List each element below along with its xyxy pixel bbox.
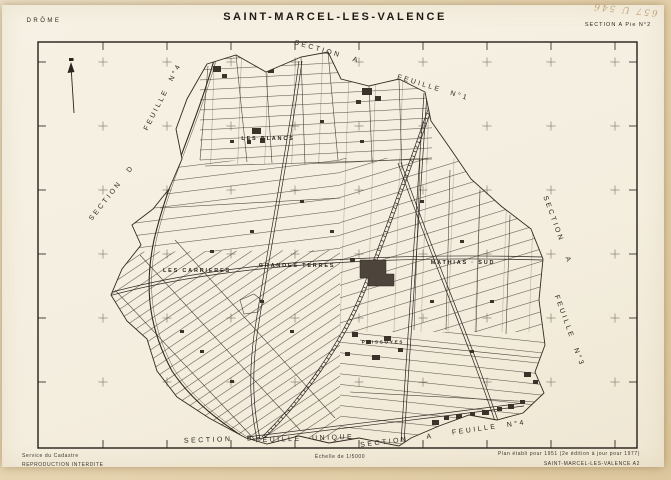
issuer-line1: Service du Cadastre xyxy=(22,453,79,459)
issuer-line2: REPRODUCTION INTERDITE xyxy=(22,462,104,468)
sheet-id: SAINT-MARCEL-LES-VALENCE A2 xyxy=(544,461,640,467)
label-poissoyes: POISSOYES xyxy=(362,340,404,345)
cadastral-map-drawing xyxy=(0,0,671,480)
page-title: SAINT-MARCEL-LES-VALENCE xyxy=(223,11,447,23)
department-label: DRÔME xyxy=(27,18,62,24)
scale-label: Échelle de 1/5000 xyxy=(315,454,365,460)
label-les-blancs: LES BLANCS xyxy=(241,136,294,142)
cadastral-map-scan: DRÔME SAINT-MARCEL-LES-VALENCE SECTION A… xyxy=(0,0,671,480)
label-grandes-terres: GRANDES TERRES xyxy=(259,263,336,269)
sheet-reference-label: SECTION A Pie N°2 xyxy=(585,22,651,28)
label-les-carrieres: LES CARRIERES xyxy=(163,268,231,274)
label-mathias-sud: MATHIAS · SUD xyxy=(431,260,496,266)
edition-note: Plan établi pour 1951 (2e édition à jour… xyxy=(498,451,640,457)
